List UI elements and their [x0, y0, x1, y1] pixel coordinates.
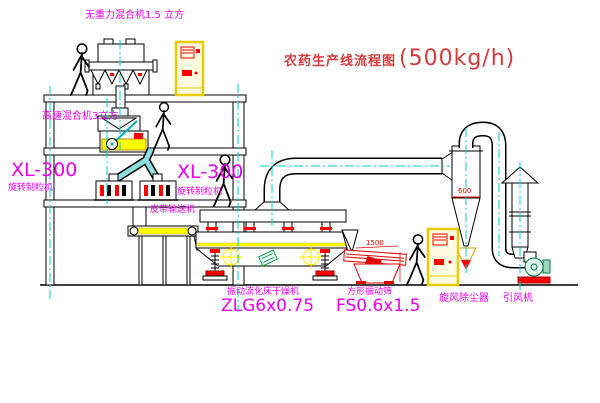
belt-conveyor-label: 皮带输送机	[150, 206, 195, 215]
title-capacity: (500kg/h)	[399, 48, 515, 70]
fan-base	[518, 277, 550, 283]
gravity-mixer-label: 无重力混合机1.5 立方	[85, 11, 184, 21]
granulator-left-name-label: 旋转制粒机	[8, 184, 53, 193]
granulator-mid-model-label: XL-300	[177, 163, 243, 182]
title-name: 农药生产线流程图	[284, 55, 396, 68]
top-floor-slab	[44, 95, 246, 102]
granulator-mid-drawing	[138, 174, 178, 200]
cyclone-label: 旋风除尘器	[439, 294, 489, 304]
granulator-left-drawing	[94, 174, 134, 200]
fan-label: 引风机	[503, 294, 533, 304]
high-speed-mixer-label: 高速混合机3立方	[42, 112, 118, 122]
granulator-left-model-label: XL-300	[11, 161, 77, 180]
main-exhaust-duct	[254, 150, 456, 211]
control-cabinet-ground-drawing	[428, 229, 458, 285]
granulator-mid-name-label: 旋转制粒机	[177, 188, 222, 197]
screen-length-dim: 1500	[366, 240, 384, 247]
dryer-model-label: ZLG6x0.75	[221, 298, 314, 315]
control-cabinet-top-drawing	[176, 42, 203, 95]
page-title: 农药生产线流程图 (500kg/h)	[284, 48, 515, 70]
screen-model-label: FS0.6x1.5	[336, 298, 420, 315]
mixer-motor	[134, 133, 143, 139]
flow-diagram-canvas: 无重力混合机1.5 立方 农药生产线流程图 (500kg/h) 高速混合机3立方…	[0, 0, 600, 403]
cyclone-diameter-dim: 600	[458, 188, 471, 195]
belt-conveyor-drawing	[128, 207, 204, 285]
